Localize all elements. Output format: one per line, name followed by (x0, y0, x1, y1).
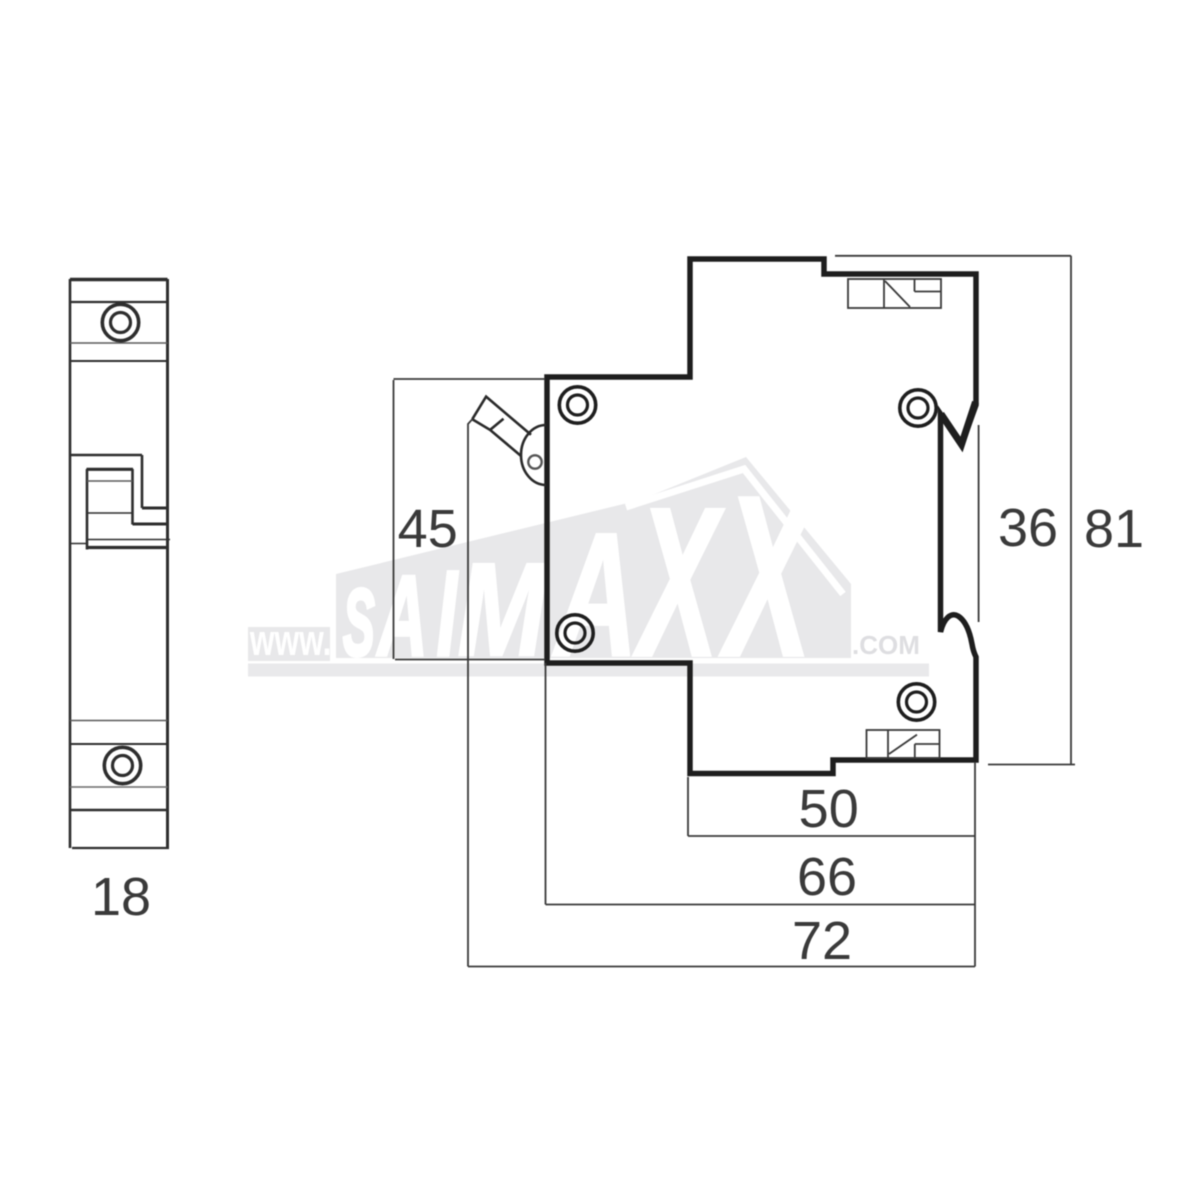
svg-text:X: X (720, 450, 818, 704)
svg-text:81: 81 (1084, 499, 1144, 559)
svg-text:36: 36 (998, 498, 1058, 558)
svg-text:66: 66 (797, 847, 857, 907)
svg-text:50: 50 (799, 779, 859, 839)
svg-text:45: 45 (398, 499, 458, 559)
svg-text:www.: www. (249, 616, 331, 665)
svg-text:S: S (343, 569, 375, 675)
svg-text:.COM: .COM (852, 630, 920, 660)
svg-text:M: M (458, 537, 548, 684)
svg-text:72: 72 (792, 911, 852, 971)
svg-text:18: 18 (91, 867, 151, 927)
svg-text:I: I (437, 547, 459, 682)
